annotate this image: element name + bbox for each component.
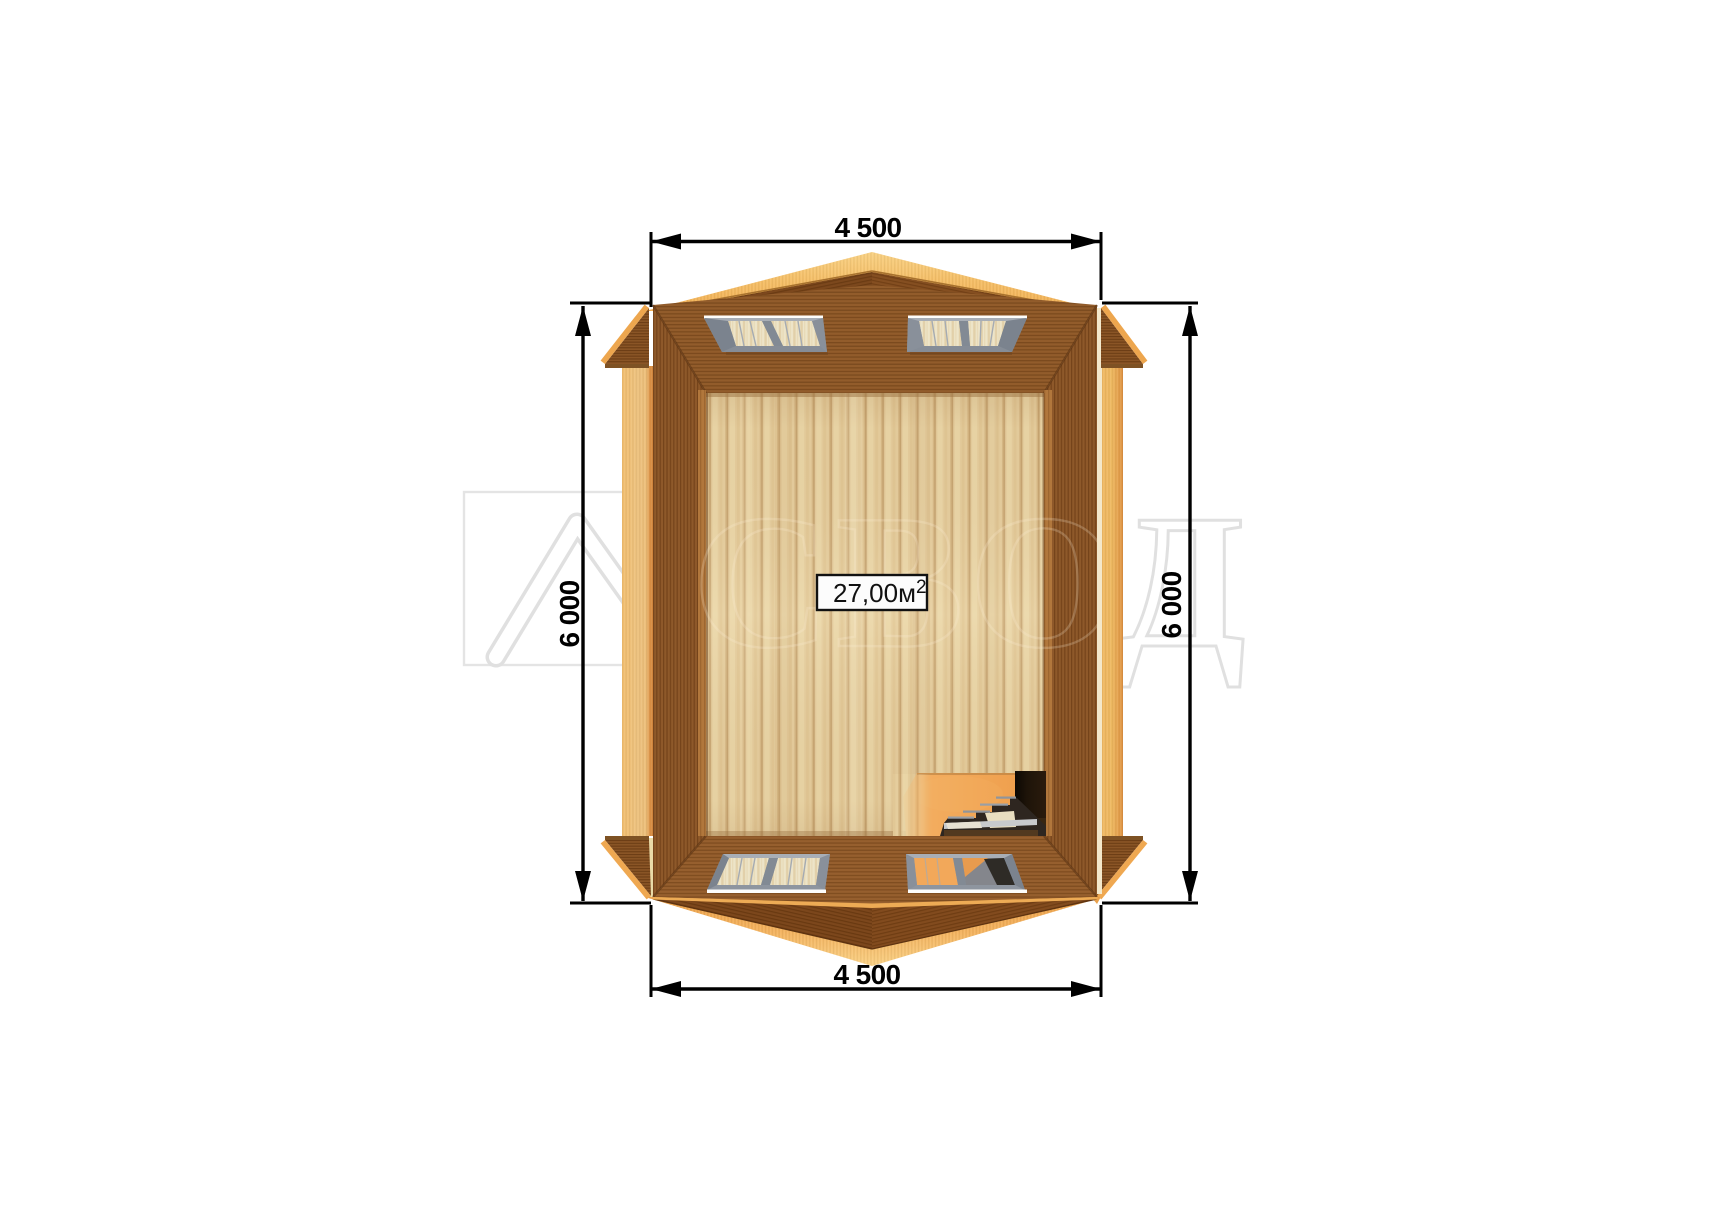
svg-text:4 500: 4 500 xyxy=(833,959,900,990)
svg-text:6 000: 6 000 xyxy=(1156,571,1187,638)
svg-text:27,00м2: 27,00м2 xyxy=(833,577,927,608)
svg-text:6 000: 6 000 xyxy=(554,580,585,647)
svg-text:4 500: 4 500 xyxy=(834,212,901,243)
